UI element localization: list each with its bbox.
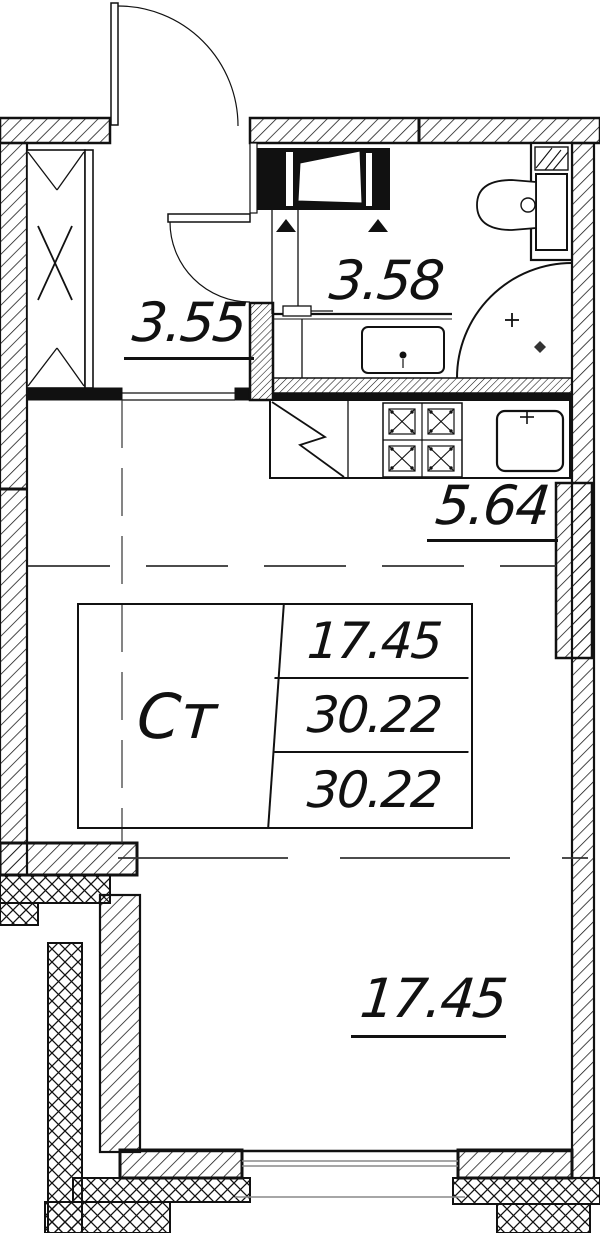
kitchen-counter (270, 400, 570, 478)
wardrobe (27, 150, 93, 388)
apartment-stamp-table: Ст 17.45 30.22 30.22 (77, 603, 473, 829)
kitchen-area-underline (427, 539, 558, 542)
window (235, 1161, 465, 1197)
stamp-living-area: 17.45 (274, 605, 473, 679)
riser-triangle-icon (276, 219, 296, 232)
riser-triangle-icon (368, 219, 388, 232)
stamp-total-area: 30.22 (274, 679, 473, 753)
stamp-reduced-area: 30.22 (274, 753, 473, 827)
drain-icon (534, 341, 546, 353)
entrance-door-arc (118, 6, 238, 126)
bathroom-door (168, 214, 250, 302)
shower (457, 263, 572, 378)
kitchen-area-label: 5.64 (414, 479, 570, 533)
hallway-area-label: 3.55 (111, 296, 267, 350)
entrance-door (111, 3, 238, 126)
faucet-icon (283, 306, 311, 316)
entrance-door-leaf (111, 3, 118, 125)
apartment-type-label: Ст (71, 605, 285, 827)
bathroom-door-leaf (168, 214, 250, 222)
kitchen-sink (497, 410, 563, 471)
washing-machine (257, 148, 390, 210)
washbasin-counter (273, 306, 452, 378)
bathroom-area-label: 3.58 (308, 254, 464, 308)
living-area-label: 17.45 (345, 972, 521, 1026)
floor-plan: 3.55 3.58 5.64 17.45 Ст 17.45 30.22 30.2… (0, 0, 600, 1233)
bathroom-door-arc (170, 222, 250, 302)
hallway-area-underline (124, 357, 254, 360)
toilet (477, 143, 572, 260)
living-area-underline (351, 1035, 506, 1038)
